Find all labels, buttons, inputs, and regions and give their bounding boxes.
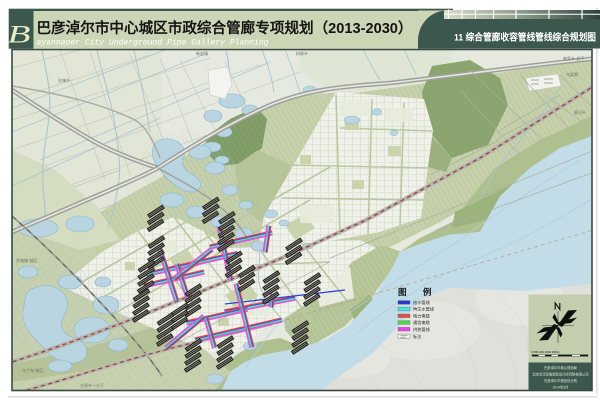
svg-text:树林乡: 树林乡 [296, 50, 308, 56]
svg-text:乌梁素: 乌梁素 [566, 71, 578, 77]
svg-text:黄河乡: 黄河乡 [574, 109, 586, 115]
svg-text:0 500 1000 2000 3: 0 500 1000 2000 3000m [532, 350, 560, 354]
svg-text:供热管线: 供热管线 [413, 326, 431, 333]
svg-text:通信电缆: 通信电缆 [413, 319, 431, 326]
svg-text:先锋乡: 先锋乡 [58, 77, 70, 83]
svg-text:ayannaoer City Underground Pip: ayannaoer City Underground Pipe Gallery … [37, 39, 269, 48]
svg-text:2014年6月: 2014年6月 [553, 385, 569, 390]
svg-text:电力电缆: 电力电缆 [413, 312, 431, 319]
svg-text:11 综合管廊收容管线管线综合规划图: 11 综合管廊收容管线管线综合规划图 [454, 32, 596, 44]
svg-text:北京清华同衡规划设计研究院有限公司: 北京清华同衡规划设计研究院有限公司 [532, 372, 588, 377]
svg-text:乌兰布·和区: 乌兰布·和区 [22, 367, 43, 373]
svg-text:金城路·城区: 金城路·城区 [16, 257, 37, 263]
svg-text:巴彦淖尔市城乡规划局: 巴彦淖尔市城乡规划局 [544, 365, 577, 370]
svg-text:巴彦淖尔市规划设计院: 巴彦淖尔市规划设计院 [544, 378, 578, 383]
svg-text:B: B [8, 21, 31, 48]
svg-text:巴彦淖尔市中心城区市政综合管廊专项规划（2013-2030）: 巴彦淖尔市中心城区市政综合管廊专项规划（2013-2030） [37, 19, 413, 37]
svg-text:新安镇: 新安镇 [196, 50, 208, 56]
svg-text:图 例: 图 例 [398, 287, 438, 297]
svg-text:给水管线: 给水管线 [413, 299, 431, 306]
svg-text:再生水管线: 再生水管线 [413, 306, 435, 313]
svg-text:五原乡一分干: 五原乡一分干 [80, 382, 104, 388]
svg-text:标注: 标注 [413, 333, 422, 340]
svg-text:奎家乡·总干: 奎家乡·总干 [563, 55, 584, 61]
